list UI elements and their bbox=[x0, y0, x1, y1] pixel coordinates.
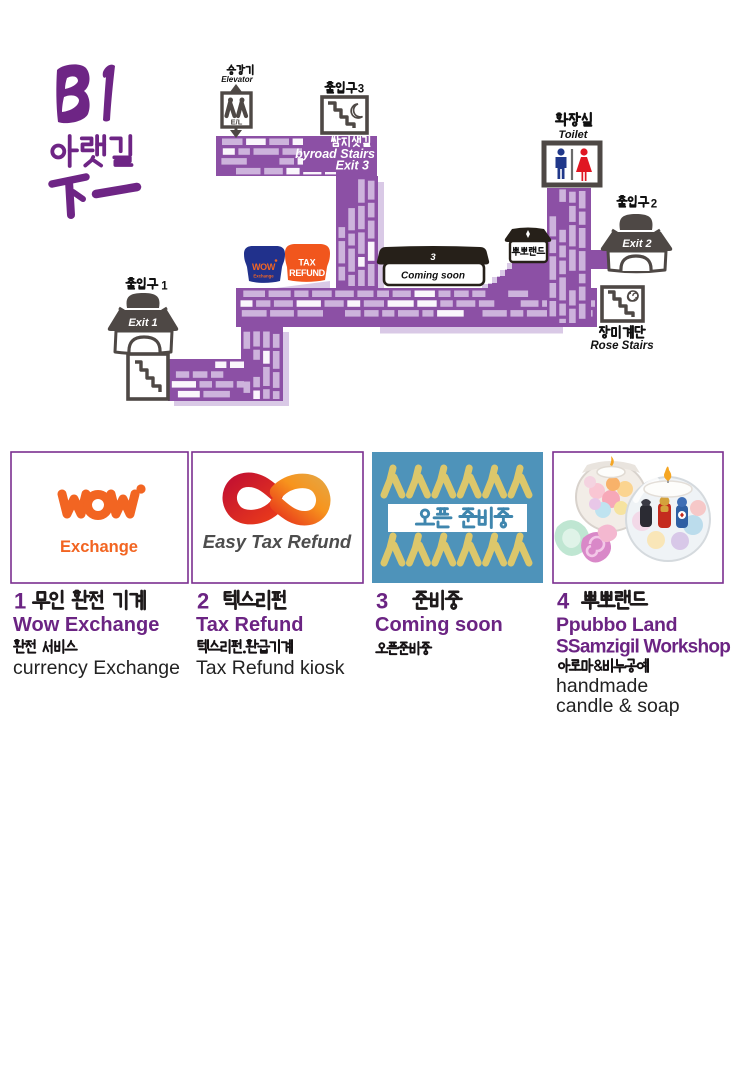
svg-text:Wow Exchange: Wow Exchange bbox=[13, 614, 159, 636]
svg-text:Tax Refund kiosk: Tax Refund kiosk bbox=[196, 657, 345, 679]
svg-text:Exit 1: Exit 1 bbox=[128, 317, 157, 329]
svg-text:handmade: handmade bbox=[556, 675, 648, 697]
svg-text:2: 2 bbox=[197, 589, 209, 614]
svg-text:Exchange: Exchange bbox=[253, 274, 274, 279]
svg-text:REFUND: REFUND bbox=[289, 268, 325, 278]
svg-text:Tax Refund: Tax Refund bbox=[196, 614, 303, 636]
svg-text:candle & soap: candle & soap bbox=[556, 695, 680, 717]
svg-text:Coming soon: Coming soon bbox=[375, 614, 503, 636]
svg-text:TAX: TAX bbox=[298, 258, 315, 268]
svg-text:currency Exchange: currency Exchange bbox=[13, 657, 180, 679]
svg-text:Coming soon: Coming soon bbox=[401, 271, 465, 282]
svg-text:4: 4 bbox=[557, 589, 570, 614]
svg-text:Ppubbo Land: Ppubbo Land bbox=[556, 614, 677, 636]
svg-text:Exit 3: Exit 3 bbox=[336, 159, 369, 173]
svg-text:3: 3 bbox=[358, 84, 364, 96]
svg-text:Exit 2: Exit 2 bbox=[622, 238, 651, 250]
svg-text:SSamzigil Workshop: SSamzigil Workshop bbox=[556, 637, 730, 658]
svg-text:3: 3 bbox=[376, 589, 388, 614]
svg-text:WOW: WOW bbox=[252, 262, 276, 272]
svg-text:Elevator: Elevator bbox=[221, 75, 253, 84]
svg-text:Rose Stairs: Rose Stairs bbox=[590, 340, 653, 352]
svg-text:Exchange: Exchange bbox=[60, 538, 138, 556]
svg-text:E/L: E/L bbox=[231, 118, 243, 127]
svg-text:1: 1 bbox=[161, 281, 168, 293]
svg-text:2: 2 bbox=[651, 199, 657, 211]
svg-text:Toilet: Toilet bbox=[559, 129, 589, 141]
svg-text:3: 3 bbox=[430, 252, 436, 263]
svg-text:1: 1 bbox=[14, 589, 26, 614]
svg-text:Easy Tax Refund: Easy Tax Refund bbox=[203, 531, 352, 552]
